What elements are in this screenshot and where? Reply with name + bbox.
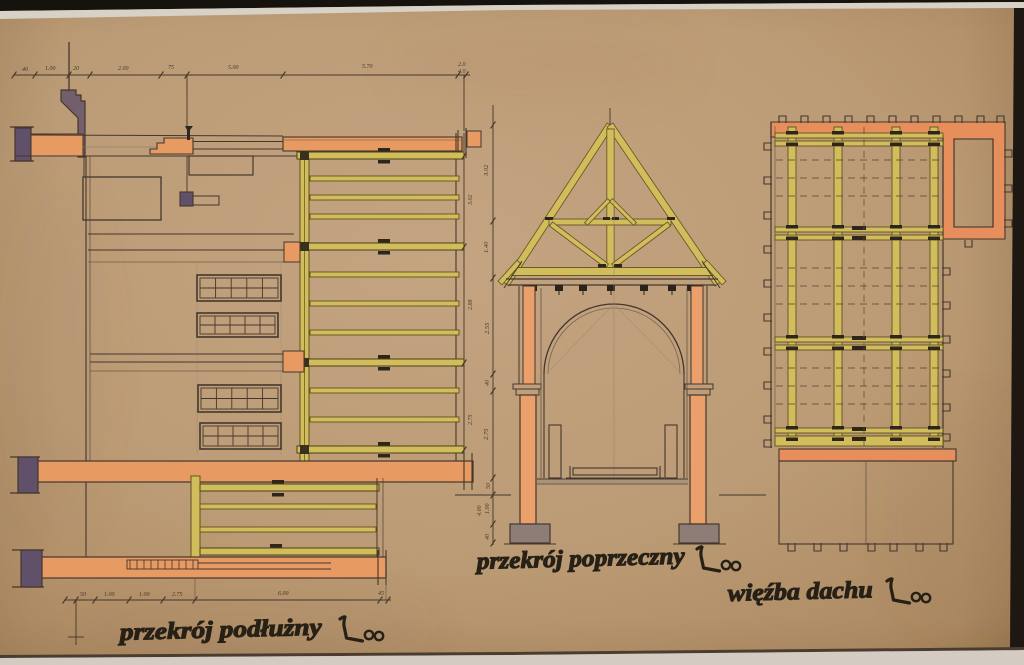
svg-text:1.00: 1.00 <box>45 66 56 72</box>
svg-text:75: 75 <box>168 65 174 71</box>
svg-text:4.00: 4.00 <box>476 506 483 517</box>
svg-text:2.00: 2.00 <box>118 66 129 72</box>
svg-text:2.88: 2.88 <box>468 300 474 311</box>
svg-text:6.00: 6.00 <box>278 591 289 597</box>
svg-text:5.00: 5.00 <box>228 65 239 71</box>
svg-text:50: 50 <box>486 483 492 489</box>
svg-text:1.00: 1.00 <box>104 592 115 598</box>
svg-text:5.70: 5.70 <box>362 64 373 70</box>
svg-text:1.00: 1.00 <box>139 592 150 598</box>
svg-text:20: 20 <box>73 66 79 72</box>
svg-text:45: 45 <box>378 590 384 597</box>
svg-text:40: 40 <box>484 534 491 540</box>
svg-text:40: 40 <box>22 66 28 73</box>
svg-text:2.0: 2.0 <box>458 62 466 68</box>
svg-text:4.0: 4.0 <box>458 68 466 75</box>
svg-text:2.75: 2.75 <box>483 428 490 440</box>
svg-text:2.75: 2.75 <box>468 415 474 426</box>
svg-text:2.75: 2.75 <box>172 592 183 598</box>
svg-text:50: 50 <box>80 592 86 598</box>
svg-text:3.02: 3.02 <box>483 164 490 177</box>
svg-text:przekrój poprzeczny: przekrój poprzeczny <box>474 544 685 576</box>
svg-text:40: 40 <box>484 380 491 386</box>
svg-text:1.00: 1.00 <box>485 504 491 515</box>
svg-text:1.40: 1.40 <box>483 241 490 253</box>
svg-text:przekrój podłużny: przekrój podłużny <box>117 615 322 646</box>
svg-text:2.55: 2.55 <box>484 322 491 334</box>
svg-text:więźba dachu: więźba dachu <box>727 577 873 607</box>
svg-text:3.02: 3.02 <box>468 195 474 207</box>
